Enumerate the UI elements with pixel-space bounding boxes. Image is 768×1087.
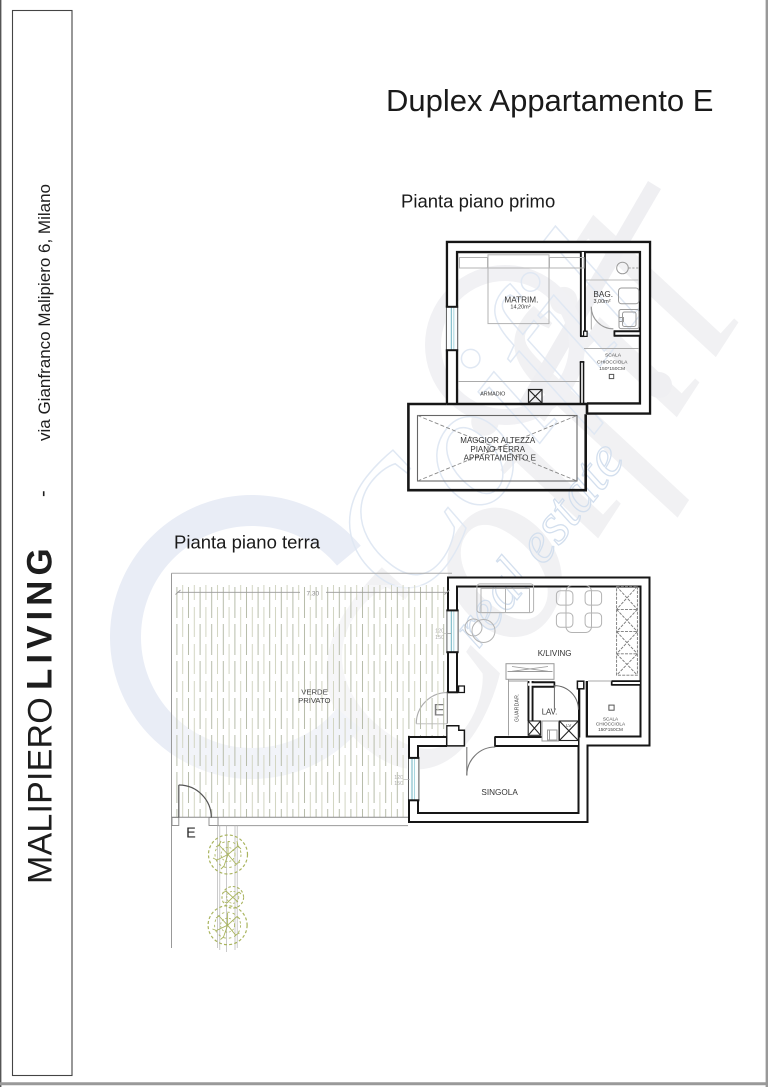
svg-text:150*150CM: 150*150CM (598, 727, 623, 732)
svg-text:LAV.: LAV. (542, 708, 558, 717)
svg-text:MALIPIERO: MALIPIERO (22, 697, 60, 884)
svg-text:MAGGIOR ALTEZZA: MAGGIOR ALTEZZA (460, 436, 536, 445)
svg-text:GUARDAR.: GUARDAR. (515, 693, 521, 722)
svg-text:7.30: 7.30 (306, 590, 319, 597)
svg-text:PRIVATO: PRIVATO (298, 696, 330, 705)
svg-text:MATRIM.: MATRIM. (504, 295, 538, 304)
svg-text:Pianta piano terra: Pianta piano terra (174, 532, 321, 553)
svg-text:-: - (32, 490, 54, 497)
svg-text:K/LIVING: K/LIVING (538, 649, 572, 658)
svg-text:3,00m²: 3,00m² (593, 299, 610, 305)
svg-text:SCALA: SCALA (605, 353, 622, 359)
svg-text:LV: LV (566, 723, 571, 728)
svg-text:14,20m²: 14,20m² (510, 305, 530, 311)
svg-text:BAG.: BAG. (593, 290, 613, 299)
svg-text:ARMADIO: ARMADIO (480, 392, 505, 398)
svg-text:Pianta piano primo: Pianta piano primo (401, 191, 555, 212)
svg-text:CHIOCCIOLA: CHIOCCIOLA (596, 722, 626, 727)
svg-text:SINGOLA: SINGOLA (481, 788, 518, 797)
svg-text:E: E (186, 826, 196, 842)
svg-text:150*150CM: 150*150CM (599, 366, 625, 372)
svg-text:APPARTAMENTO E: APPARTAMENTO E (464, 454, 536, 463)
svg-text:LIVING: LIVING (21, 543, 60, 690)
svg-text:Duplex Appartamento E: Duplex Appartamento E (386, 83, 713, 118)
svg-text:via Gianfranco Malipiero 6, Mi: via Gianfranco Malipiero 6, Milano (35, 184, 54, 441)
svg-text:CHIOCCIOLA: CHIOCCIOLA (597, 360, 628, 366)
svg-text:SCALA: SCALA (603, 716, 619, 721)
